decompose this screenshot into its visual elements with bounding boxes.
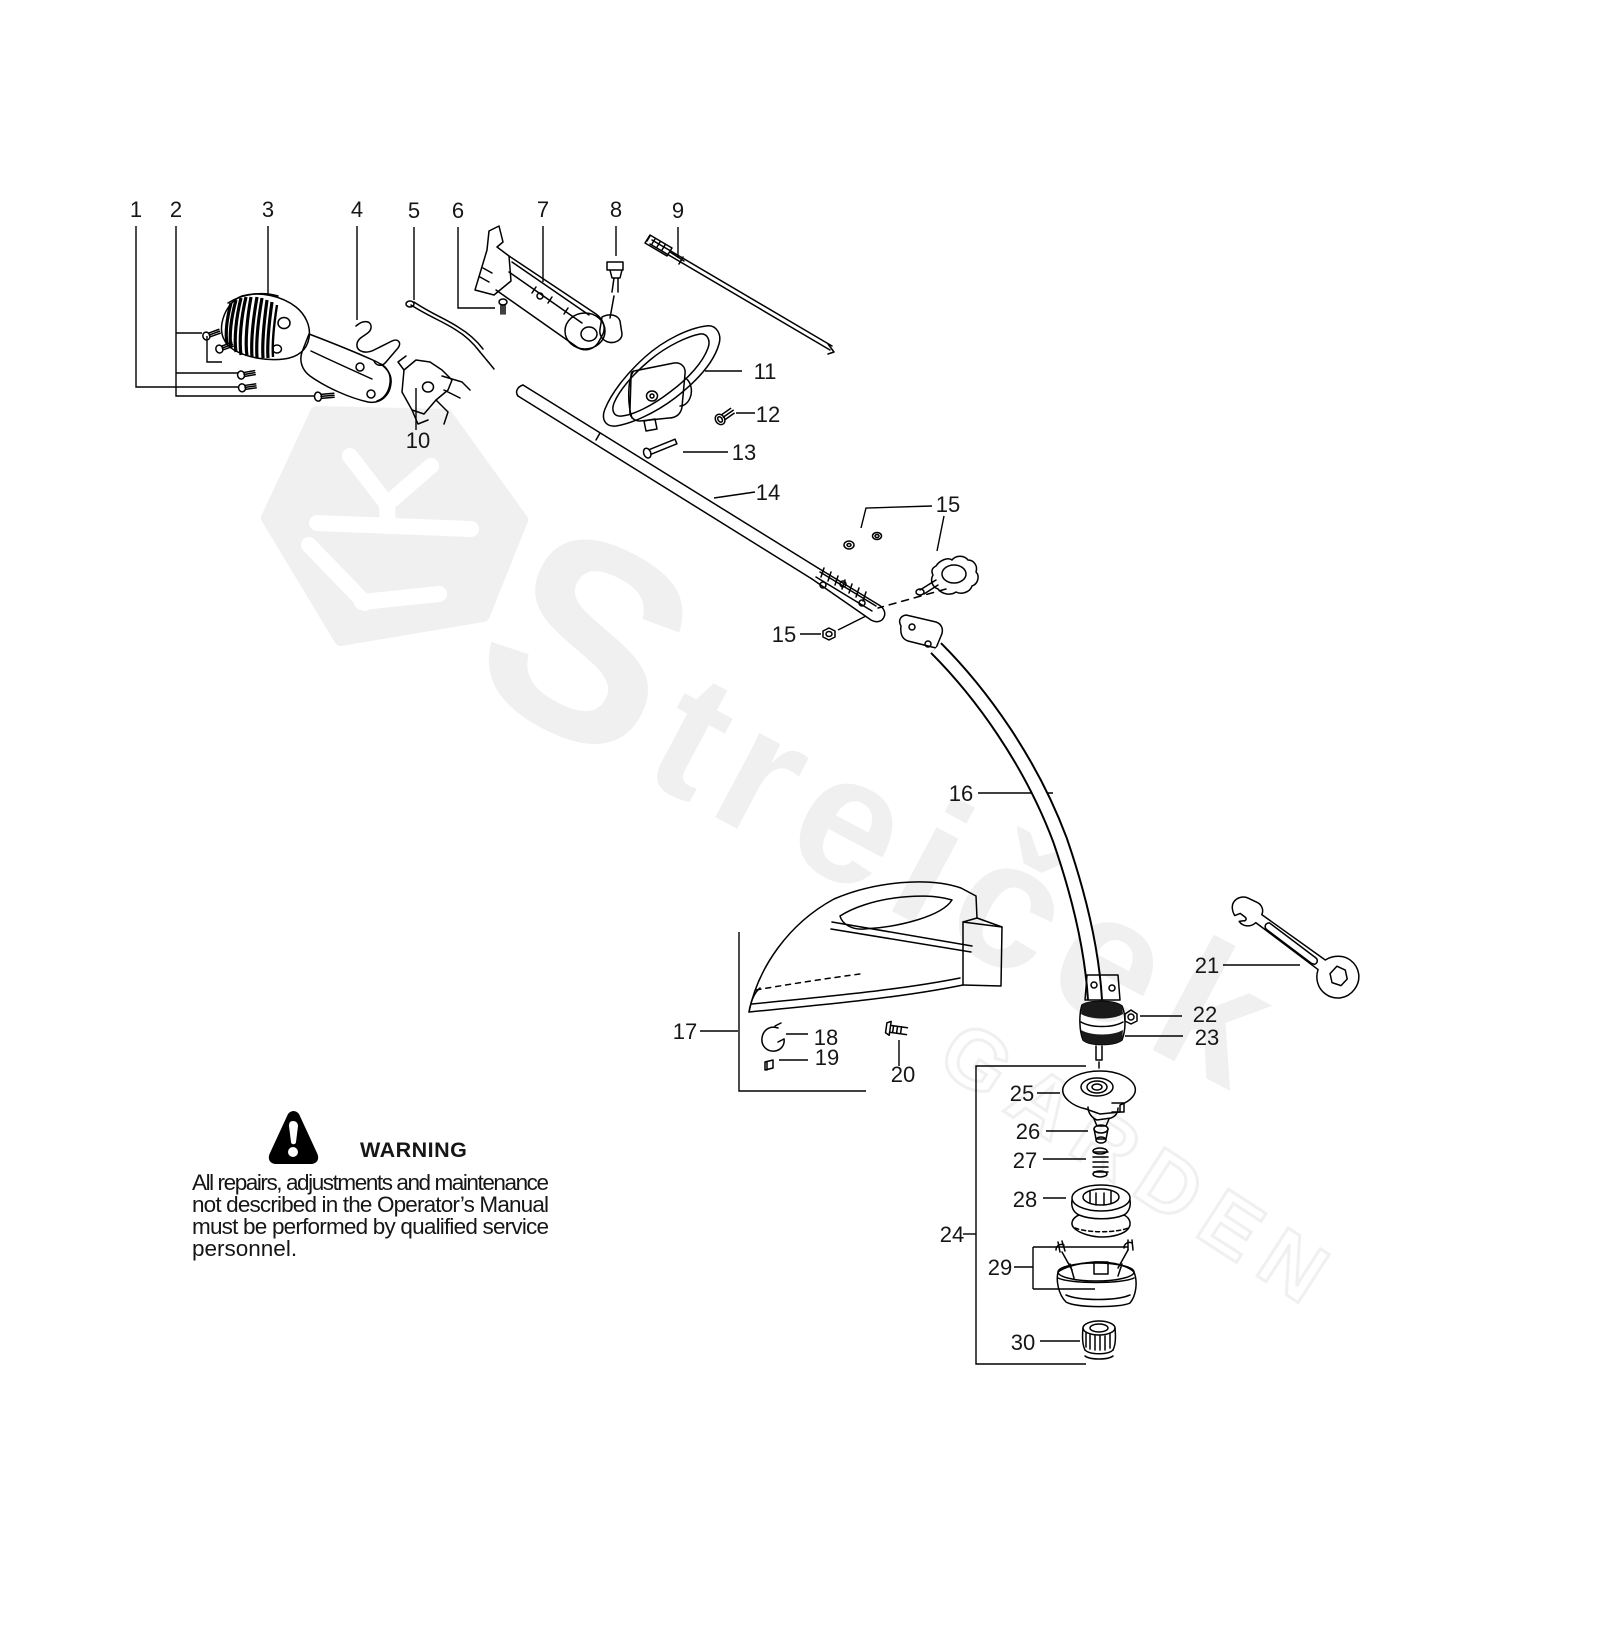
svg-text:29: 29 [988,1255,1012,1280]
svg-text:7: 7 [537,197,549,222]
svg-text:9: 9 [672,198,684,223]
svg-text:14: 14 [756,480,780,505]
svg-text:2: 2 [170,197,182,222]
svg-text:11: 11 [754,359,777,384]
svg-text:30: 30 [1011,1330,1035,1355]
svg-text:10: 10 [406,428,430,453]
svg-text:22: 22 [1193,1002,1217,1027]
svg-text:1: 1 [130,197,142,222]
svg-text:17: 17 [673,1019,697,1044]
svg-text:8: 8 [610,197,622,222]
svg-text:15: 15 [772,622,796,647]
svg-text:21: 21 [1195,953,1219,978]
svg-text:3: 3 [262,197,274,222]
svg-text:28: 28 [1013,1187,1037,1212]
svg-text:20: 20 [891,1062,915,1087]
svg-text:13: 13 [732,440,756,465]
svg-text:15: 15 [936,492,960,517]
svg-text:19: 19 [815,1045,839,1070]
svg-text:12: 12 [756,402,780,427]
svg-text:26: 26 [1016,1119,1040,1144]
svg-text:23: 23 [1195,1025,1219,1050]
svg-text:6: 6 [452,198,464,223]
svg-text:27: 27 [1013,1148,1037,1173]
svg-text:16: 16 [949,781,973,806]
svg-text:WARNING: WARNING [360,1138,467,1162]
svg-text:24: 24 [940,1222,964,1247]
svg-text:personnel.: personnel. [192,1236,297,1261]
svg-text:4: 4 [351,197,363,222]
svg-text:5: 5 [408,198,420,223]
svg-text:25: 25 [1010,1081,1034,1106]
